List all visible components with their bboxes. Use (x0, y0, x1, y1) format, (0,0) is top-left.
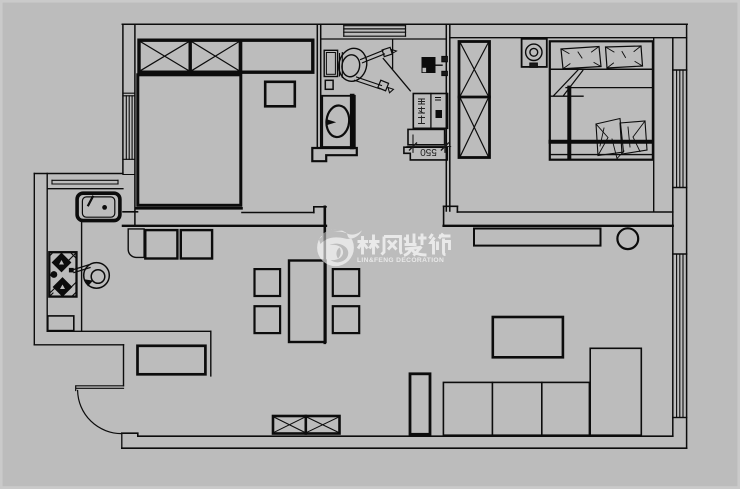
svg-text:550: 550 (420, 146, 437, 157)
svg-text:LIN&FENG DECORATION: LIN&FENG DECORATION (357, 257, 444, 264)
